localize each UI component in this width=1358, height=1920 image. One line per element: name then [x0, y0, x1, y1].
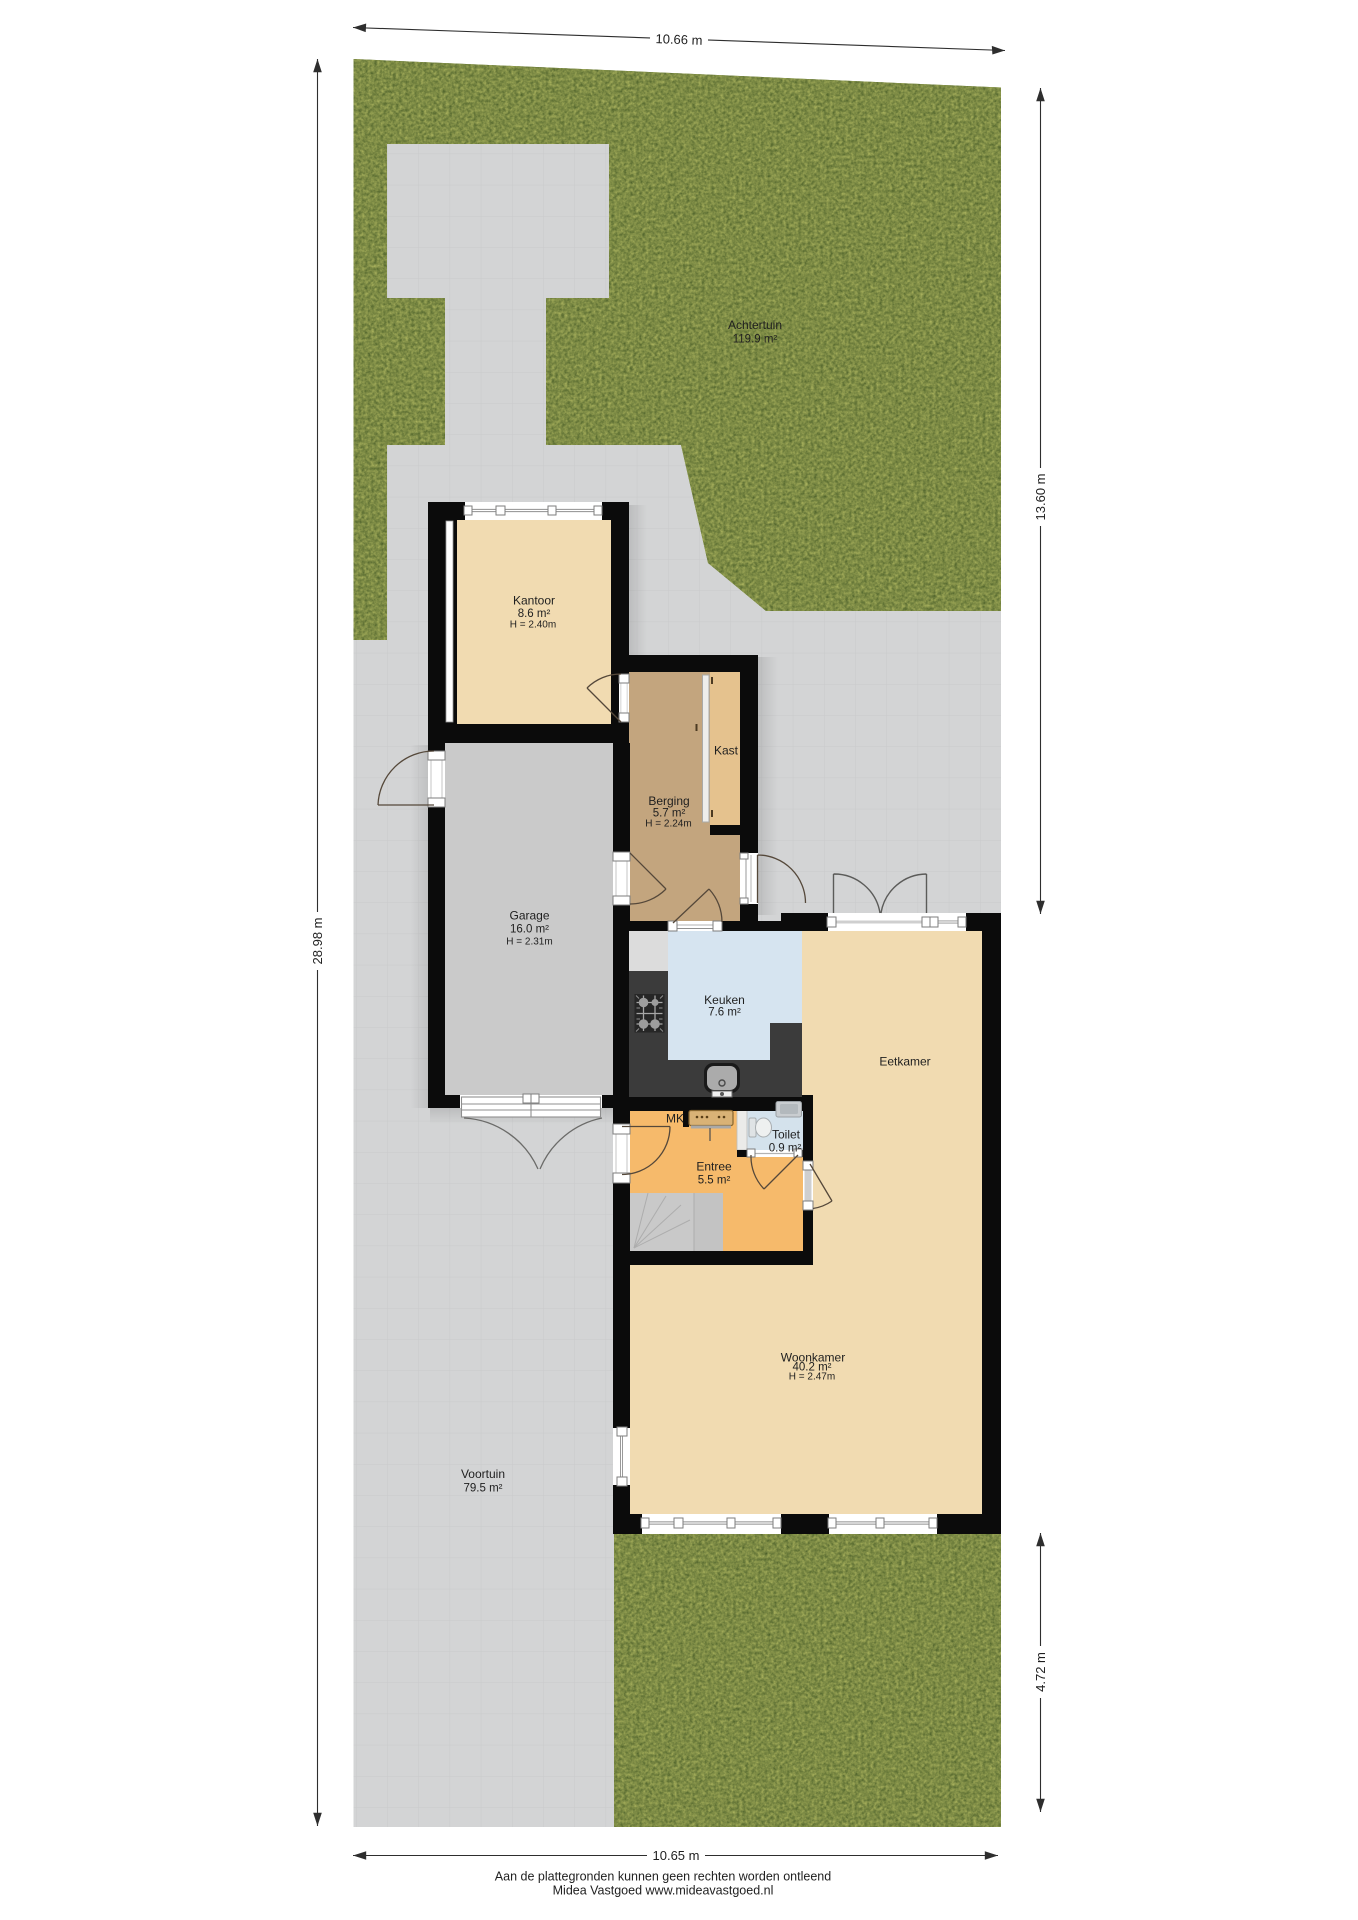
svg-text:10.66 m: 10.66 m: [655, 31, 702, 48]
svg-text:H = 2.31m: H = 2.31m: [506, 937, 552, 948]
svg-text:10.65 m: 10.65 m: [653, 1848, 700, 1863]
svg-text:8.6 m²: 8.6 m²: [518, 608, 551, 620]
svg-text:7.6 m²: 7.6 m²: [708, 1007, 741, 1019]
svg-text:13.60 m: 13.60 m: [1033, 474, 1048, 521]
svg-text:79.5 m²: 79.5 m²: [464, 1483, 503, 1495]
svg-text:Aan de plattegronden kunnen ge: Aan de plattegronden kunnen geen rechten…: [495, 1870, 831, 1884]
svg-text:H = 2.40m: H = 2.40m: [510, 620, 556, 631]
svg-text:4.72 m: 4.72 m: [1033, 1652, 1048, 1692]
svg-text:0.9 m²: 0.9 m²: [769, 1143, 802, 1155]
svg-text:Midea Vastgoed www.mideavastgo: Midea Vastgoed www.mideavastgoed.nl: [553, 1884, 774, 1898]
svg-text:H = 2.47m: H = 2.47m: [789, 1372, 835, 1383]
svg-text:Kast: Kast: [714, 744, 739, 758]
svg-text:Toilet: Toilet: [772, 1128, 801, 1142]
svg-text:28.98 m: 28.98 m: [310, 918, 325, 965]
svg-text:Kantoor: Kantoor: [513, 594, 555, 608]
svg-text:Entree: Entree: [696, 1160, 732, 1174]
svg-text:Berging: Berging: [648, 794, 689, 808]
svg-text:Garage: Garage: [509, 909, 549, 923]
svg-text:H = 2.24m: H = 2.24m: [645, 819, 691, 830]
svg-text:5.5 m²: 5.5 m²: [698, 1175, 731, 1187]
svg-text:Eetkamer: Eetkamer: [879, 1055, 930, 1069]
svg-text:119.9 m²: 119.9 m²: [733, 334, 778, 346]
svg-text:Keuken: Keuken: [704, 993, 745, 1007]
svg-text:Voortuin: Voortuin: [461, 1467, 505, 1481]
svg-text:16.0 m²: 16.0 m²: [510, 924, 549, 936]
svg-text:MK: MK: [666, 1112, 684, 1126]
svg-text:Achtertuin: Achtertuin: [728, 318, 782, 332]
